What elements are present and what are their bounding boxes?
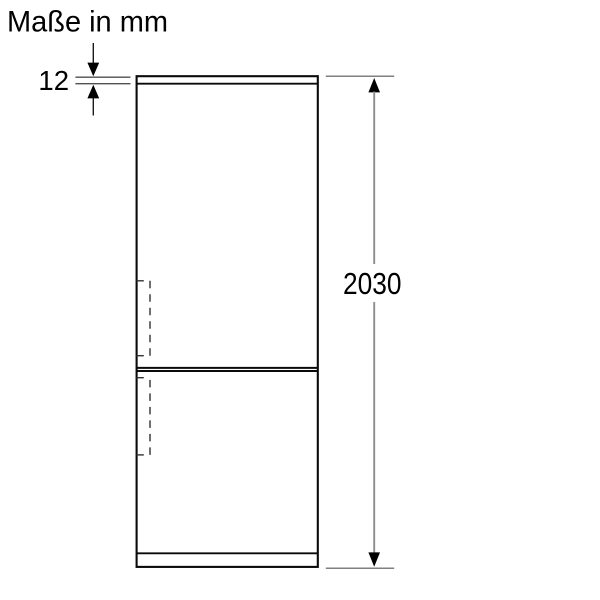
svg-text:12: 12 [38, 65, 69, 96]
svg-text:2030: 2030 [343, 267, 402, 301]
svg-text:Maße in mm: Maße in mm [7, 6, 168, 39]
